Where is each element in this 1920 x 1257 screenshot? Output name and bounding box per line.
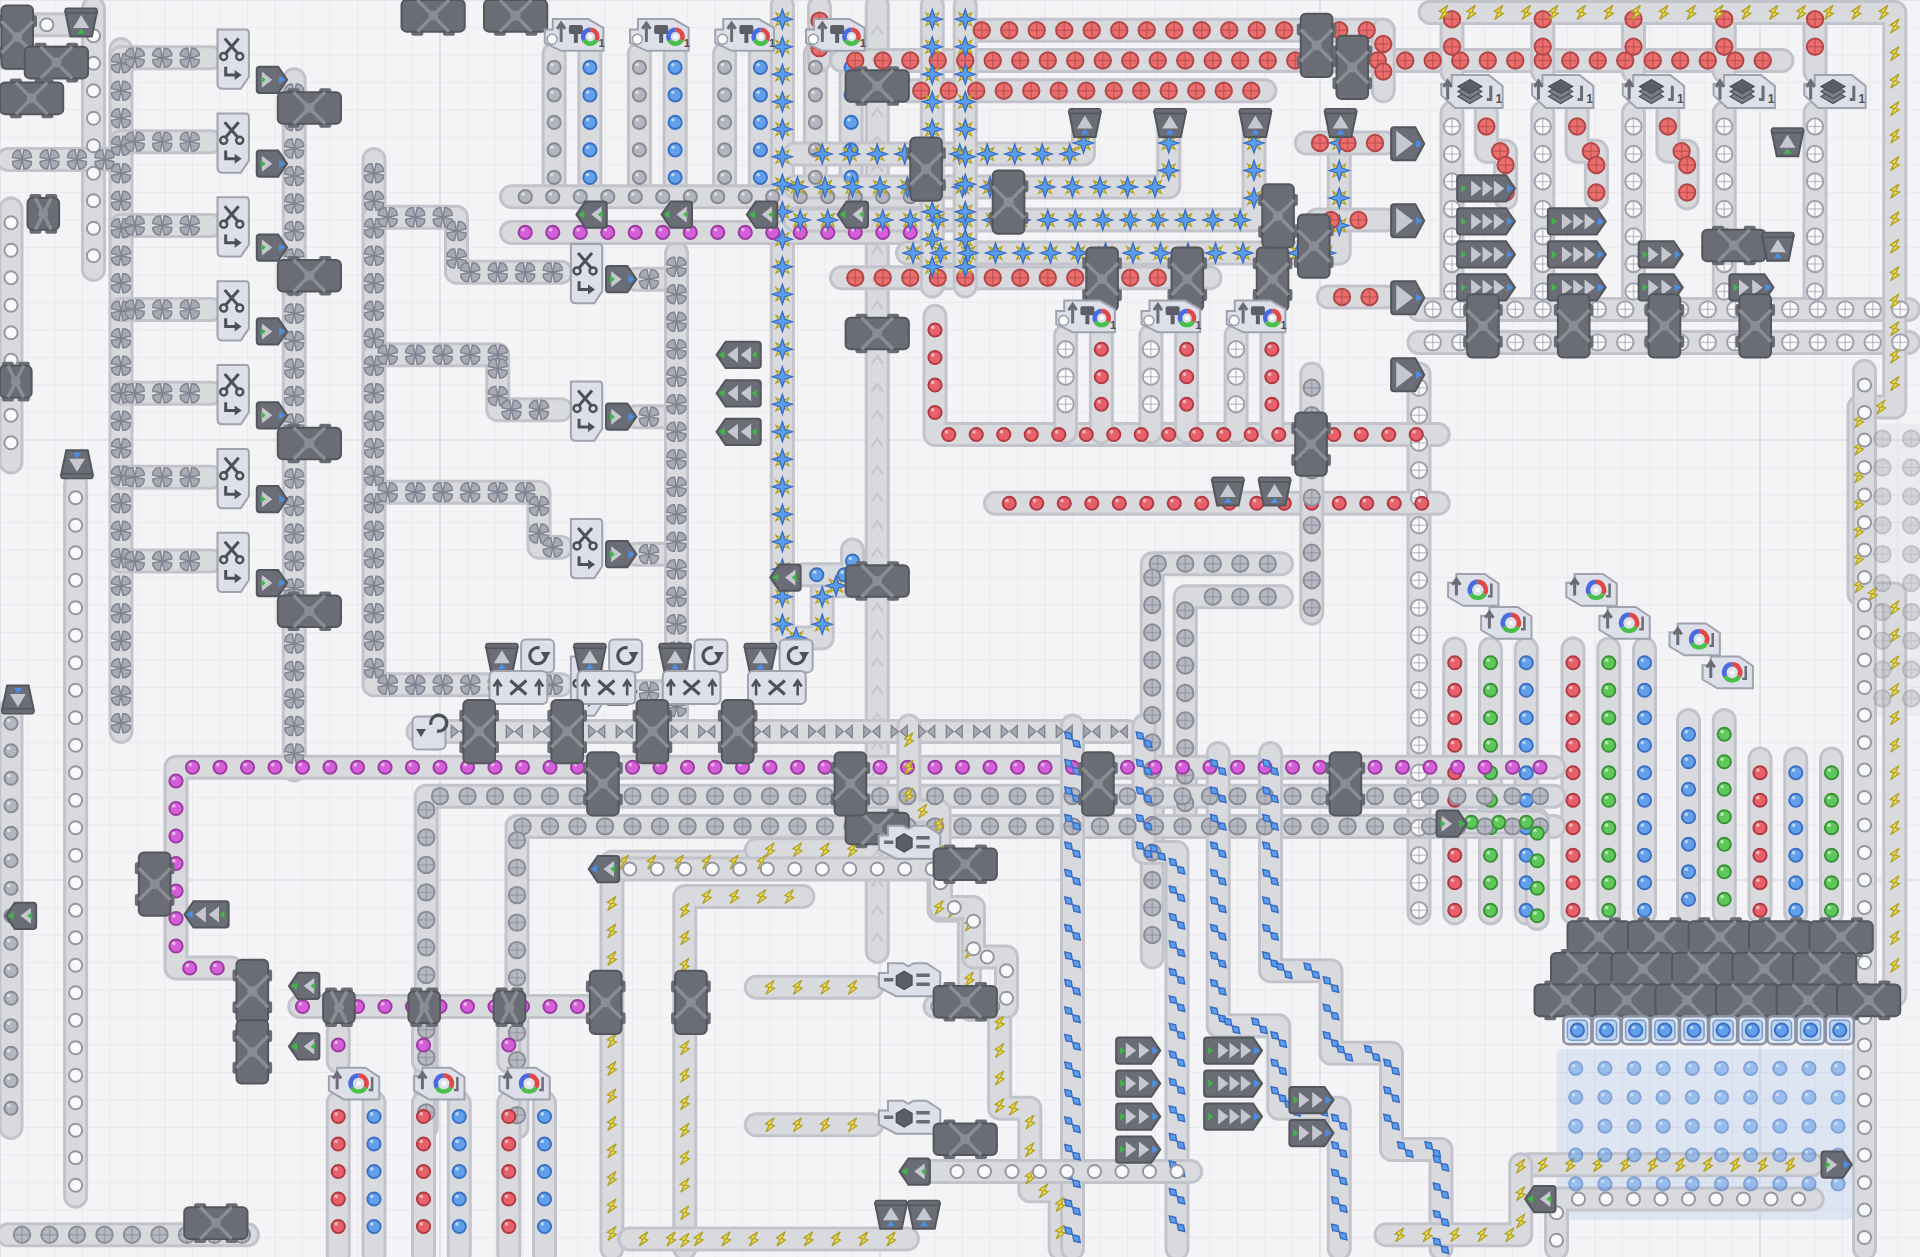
machine-bal[interactable] — [583, 752, 623, 815]
item-circle — [1040, 52, 1056, 68]
item-blob — [669, 171, 682, 184]
item-blob — [1718, 838, 1731, 851]
machine-tun[interactable] — [486, 644, 518, 672]
machine-paint[interactable]: 1 — [545, 19, 605, 51]
machine-tun[interactable] — [1762, 232, 1794, 260]
item-circle — [1716, 173, 1732, 189]
machine-paint[interactable]: 1 — [806, 19, 866, 51]
item-circle — [14, 1227, 30, 1243]
item-blob — [1531, 882, 1544, 895]
item-blob — [1000, 992, 1013, 1005]
machine-tun[interactable] — [745, 644, 777, 672]
machine-bal[interactable] — [1554, 294, 1594, 357]
item-circle — [1339, 818, 1355, 834]
machine-bal[interactable] — [1645, 294, 1685, 357]
item-blob — [583, 171, 596, 184]
item-circle — [509, 914, 525, 930]
machine-rot[interactable] — [609, 639, 642, 672]
machine-spl[interactable] — [0, 362, 32, 402]
item-circle — [734, 788, 750, 804]
item-circle — [509, 887, 525, 903]
machine-mix[interactable] — [329, 1068, 379, 1100]
item-circle — [1411, 517, 1427, 533]
item-blob — [1140, 497, 1153, 510]
paint-input-icon — [547, 34, 557, 44]
item-blob — [69, 986, 82, 999]
machine-tun[interactable] — [875, 1200, 907, 1228]
machine-bal[interactable] — [831, 752, 871, 815]
machine-cut[interactable] — [218, 449, 249, 508]
item-circle — [151, 1227, 167, 1243]
machine-cut[interactable] — [218, 113, 249, 172]
item-blob — [1569, 1091, 1582, 1104]
item-blob — [1832, 1091, 1845, 1104]
item-circle — [1111, 22, 1127, 38]
machine-tun[interactable] — [1259, 477, 1291, 505]
item-blob — [1638, 794, 1651, 807]
machine-bal[interactable] — [278, 591, 341, 631]
machine-chev[interactable] — [1457, 241, 1515, 267]
machine-store[interactable] — [1593, 1016, 1621, 1044]
machine-chev[interactable] — [1457, 175, 1515, 201]
item-blob — [1789, 794, 1802, 807]
item-blob — [1858, 956, 1871, 969]
machine-chev[interactable] — [717, 419, 761, 445]
item-blob — [1686, 1148, 1699, 1161]
item-blob — [754, 61, 767, 74]
item-blob — [367, 1137, 380, 1150]
item-blob — [1095, 398, 1108, 411]
painter-tier-label: 1 — [599, 37, 605, 49]
machine-paint[interactable]: 1 — [1227, 300, 1287, 332]
item-blob — [1858, 1231, 1871, 1244]
item-circle — [1205, 589, 1221, 605]
machine-tun[interactable] — [1154, 109, 1186, 137]
machine-bal[interactable] — [25, 43, 88, 83]
item-blob — [1531, 827, 1544, 840]
machine-chev[interactable] — [717, 380, 761, 406]
item-circle — [1037, 818, 1053, 834]
item-blob — [1858, 901, 1871, 914]
factory-canvas[interactable]: 111111111111 — [0, 0, 1920, 1257]
machine-bal[interactable] — [846, 314, 909, 354]
machine-cut[interactable] — [571, 519, 602, 578]
item-blob — [718, 171, 731, 184]
item-blob — [4, 827, 17, 840]
machine-bal[interactable] — [846, 66, 909, 106]
item-blob — [681, 761, 694, 774]
machine-chev[interactable] — [1116, 1070, 1160, 1096]
item-blob — [453, 1137, 466, 1150]
machine-chev[interactable] — [1116, 1136, 1160, 1162]
machine-mix[interactable] — [414, 1068, 464, 1100]
machine-chev[interactable] — [1639, 241, 1683, 267]
item-circle — [418, 967, 434, 983]
item-circle — [1411, 737, 1427, 753]
item-blob — [583, 61, 596, 74]
item-blob — [69, 1151, 82, 1164]
machine-paint[interactable]: 1 — [715, 19, 775, 51]
item-blob — [4, 937, 17, 950]
item-blob — [1792, 1192, 1805, 1205]
item-blob — [718, 116, 731, 129]
item-circle — [982, 788, 998, 804]
item-blob — [1858, 626, 1871, 639]
item-circle — [1660, 118, 1676, 134]
machine-spl[interactable] — [323, 987, 355, 1027]
machine-tun[interactable] — [908, 1200, 940, 1228]
item-circle — [1497, 157, 1513, 173]
stacker-tier-label: 1 — [1496, 92, 1503, 106]
item-blob — [1858, 818, 1871, 831]
game-viewport[interactable]: 111111111111 — [0, 0, 1920, 1257]
item-blob — [1531, 909, 1544, 922]
item-blob — [367, 1192, 380, 1205]
item-blob — [1448, 904, 1461, 917]
machine-chev[interactable] — [1204, 1070, 1262, 1096]
machine-tun[interactable] — [659, 644, 691, 672]
machine-cut[interactable] — [571, 382, 602, 441]
item-circle — [1672, 52, 1688, 68]
item-blob — [69, 711, 82, 724]
item-circle — [1562, 52, 1578, 68]
item-blob — [1657, 1120, 1670, 1133]
machine-bal[interactable] — [459, 700, 499, 763]
item-blob — [1492, 816, 1505, 829]
machine-chev[interactable] — [1289, 1087, 1333, 1113]
item-circle — [1232, 556, 1248, 572]
machine-bal[interactable] — [278, 256, 341, 296]
machine-chev[interactable] — [185, 901, 229, 927]
item-blob — [4, 244, 17, 257]
machine-store[interactable] — [1826, 1016, 1854, 1044]
machine-bal[interactable] — [547, 700, 587, 763]
machine-hexm[interactable] — [879, 963, 940, 996]
machine-cut[interactable] — [218, 30, 249, 89]
item-blob — [967, 915, 980, 928]
item-blob — [651, 862, 664, 875]
machine-tun[interactable] — [1069, 109, 1101, 137]
item-blob — [186, 761, 199, 774]
machine-rot[interactable] — [694, 639, 727, 672]
machine-spl[interactable] — [28, 194, 60, 234]
item-blob — [1410, 428, 1423, 441]
machine-chev[interactable] — [1204, 1037, 1262, 1063]
machine-hcut[interactable] — [490, 671, 548, 704]
machine-tun[interactable] — [1325, 109, 1357, 137]
machine-bal[interactable] — [906, 138, 946, 201]
machine-tun[interactable] — [61, 450, 93, 478]
machine-bal[interactable] — [586, 971, 626, 1034]
machine-paint[interactable]: 1 — [1142, 300, 1202, 332]
item-blob — [417, 1137, 430, 1150]
item-blob — [1005, 1165, 1018, 1178]
item-circle — [1144, 652, 1160, 668]
machine-tun[interactable] — [1772, 128, 1804, 156]
item-blob — [87, 222, 100, 235]
machine-bal[interactable] — [1078, 752, 1118, 815]
item-circle — [1177, 740, 1193, 756]
item-blob — [453, 1165, 466, 1178]
item-circle — [985, 52, 1001, 68]
item-blob — [1718, 783, 1731, 796]
item-blob — [1657, 1148, 1670, 1161]
machine-bal[interactable] — [989, 171, 1029, 234]
item-blob — [69, 959, 82, 972]
machine-paint[interactable]: 1 — [1056, 300, 1116, 332]
item-blob — [4, 326, 17, 339]
machine-cut[interactable] — [218, 365, 249, 424]
machine-rotc[interactable] — [413, 715, 447, 749]
item-blob — [1602, 904, 1615, 917]
machine-bal[interactable] — [278, 424, 341, 464]
machine-store[interactable] — [1738, 1016, 1766, 1044]
machine-bal[interactable] — [1656, 981, 1719, 1021]
item-blob — [1030, 497, 1043, 510]
item-blob — [754, 143, 767, 156]
item-circle — [1807, 11, 1823, 27]
item-blob — [1135, 428, 1148, 441]
machine-tun[interactable] — [1240, 109, 1272, 137]
machine-mix[interactable] — [1670, 624, 1720, 656]
item-blob — [461, 1000, 474, 1013]
item-blob — [1715, 1091, 1728, 1104]
item-blob — [1115, 1165, 1128, 1178]
item-blob — [1773, 1062, 1786, 1075]
item-blob — [332, 1110, 345, 1123]
machine-chev[interactable] — [1116, 1037, 1160, 1063]
machine-store[interactable] — [1709, 1016, 1737, 1044]
machine-bal[interactable] — [402, 0, 465, 36]
item-circle — [902, 52, 918, 68]
machine-paint[interactable]: 1 — [630, 19, 690, 51]
item-circle — [1625, 146, 1641, 162]
item-blob — [845, 116, 858, 129]
machine-bal[interactable] — [1837, 981, 1900, 1021]
machine-mix[interactable] — [1566, 574, 1616, 606]
machine-bal[interactable] — [1702, 226, 1765, 266]
item-blob — [169, 939, 182, 952]
item-blob — [1709, 1192, 1722, 1205]
item-blob — [583, 143, 596, 156]
item-blob — [1265, 343, 1278, 356]
machine-hcut[interactable] — [578, 671, 636, 704]
machine-bal[interactable] — [233, 1020, 273, 1083]
machine-rot[interactable] — [521, 639, 554, 672]
machine-chev[interactable] — [1289, 1120, 1333, 1146]
item-circle — [1504, 818, 1520, 834]
machine-bal[interactable] — [1294, 215, 1334, 278]
machine-bal[interactable] — [1535, 981, 1598, 1021]
item-circle — [1874, 488, 1890, 504]
item-blob — [1388, 497, 1401, 510]
item-circle — [1205, 52, 1221, 68]
item-circle — [1177, 712, 1193, 728]
item-blob — [1520, 684, 1533, 697]
item-blob — [1858, 1148, 1871, 1161]
item-blob — [4, 854, 17, 867]
machine-rot[interactable] — [780, 639, 813, 672]
item-blob — [1744, 1177, 1757, 1190]
machine-bal[interactable] — [633, 700, 673, 763]
item-blob — [1858, 1066, 1871, 1079]
machine-tun[interactable] — [1212, 477, 1244, 505]
item-circle — [1084, 22, 1100, 38]
item-blob — [1423, 761, 1436, 774]
item-circle — [1700, 334, 1716, 350]
item-blob — [1775, 1024, 1788, 1037]
item-blob — [69, 546, 82, 559]
item-blob — [1085, 497, 1098, 510]
machine-tun[interactable] — [65, 8, 97, 36]
item-circle — [1177, 630, 1193, 646]
paint-input-icon — [808, 34, 818, 44]
item-blob — [1602, 766, 1615, 779]
item-circle — [1810, 301, 1826, 317]
item-blob — [1095, 370, 1108, 383]
machine-bal[interactable] — [1735, 294, 1775, 357]
item-blob — [1360, 497, 1373, 510]
item-blob — [378, 1000, 391, 1013]
item-blob — [69, 739, 82, 752]
machine-bal[interactable] — [1258, 184, 1298, 247]
machine-bal[interactable] — [671, 971, 711, 1034]
machine-hexm[interactable] — [879, 826, 940, 859]
machine-bal[interactable] — [135, 853, 175, 916]
item-circle — [418, 857, 434, 873]
item-circle — [1874, 604, 1890, 620]
item-blob — [633, 116, 646, 129]
machine-cut[interactable] — [218, 281, 249, 340]
item-blob — [1250, 497, 1263, 510]
machine-bal[interactable] — [1333, 36, 1373, 99]
item-blob — [810, 568, 823, 581]
machine-chev[interactable] — [1548, 208, 1606, 234]
item-blob — [1825, 904, 1838, 917]
machine-mix[interactable] — [1703, 657, 1753, 689]
item-circle — [996, 83, 1012, 99]
item-blob — [69, 656, 82, 669]
machine-bal[interactable] — [1716, 981, 1779, 1021]
item-blob — [761, 862, 774, 875]
machine-spl[interactable] — [408, 987, 440, 1027]
paint-input-icon — [632, 34, 642, 44]
machine-mix[interactable] — [499, 1068, 549, 1100]
machine-store[interactable] — [1651, 1016, 1679, 1044]
machine-spl[interactable] — [494, 987, 526, 1027]
item-circle — [941, 83, 957, 99]
item-blob — [1657, 1177, 1670, 1190]
item-blob — [1682, 838, 1695, 851]
machine-store[interactable] — [1767, 1016, 1795, 1044]
item-circle — [597, 818, 613, 834]
machine-tun[interactable] — [2, 685, 34, 713]
item-blob — [1566, 711, 1579, 724]
item-blob — [1550, 1234, 1563, 1247]
item-blob — [1484, 656, 1497, 669]
machine-bal[interactable] — [846, 561, 909, 601]
item-blob — [571, 1000, 584, 1013]
item-blob — [1638, 684, 1651, 697]
machine-bal[interactable] — [184, 1203, 247, 1243]
machine-chev[interactable] — [1204, 1103, 1262, 1129]
item-blob — [69, 821, 82, 834]
item-circle — [1161, 83, 1177, 99]
machine-hcut[interactable] — [663, 671, 721, 704]
machine-bal[interactable] — [233, 960, 273, 1023]
item-blob — [1825, 849, 1838, 862]
item-circle — [1304, 517, 1320, 533]
item-blob — [1773, 1177, 1786, 1190]
item-blob — [1744, 1091, 1757, 1104]
machine-bal[interactable] — [0, 79, 63, 119]
machine-bal[interactable] — [718, 700, 758, 763]
machine-bal[interactable] — [1777, 981, 1840, 1021]
item-blob — [69, 766, 82, 779]
machine-hcut[interactable] — [748, 671, 806, 704]
item-circle — [652, 818, 668, 834]
item-blob — [4, 964, 17, 977]
item-circle — [954, 788, 970, 804]
machine-bal[interactable] — [1297, 14, 1337, 77]
machine-chev[interactable] — [717, 342, 761, 368]
machine-bal[interactable] — [278, 88, 341, 128]
item-circle — [817, 818, 833, 834]
machine-bal[interactable] — [484, 0, 547, 36]
item-circle — [1411, 682, 1427, 698]
item-circle — [1874, 661, 1890, 677]
item-circle — [1228, 396, 1244, 412]
machine-bal[interactable] — [1326, 752, 1366, 815]
item-blob — [169, 774, 182, 787]
machine-bal[interactable] — [934, 844, 997, 884]
machine-store[interactable] — [1563, 1016, 1591, 1044]
item-circle — [1106, 83, 1122, 99]
item-blob — [1602, 794, 1615, 807]
machine-chev[interactable] — [1548, 241, 1606, 267]
machine-bal[interactable] — [934, 982, 997, 1022]
machine-store[interactable] — [1797, 1016, 1825, 1044]
machine-bal[interactable] — [1463, 294, 1503, 357]
machine-cut[interactable] — [571, 244, 602, 303]
item-circle — [1807, 173, 1823, 189]
machine-cut[interactable] — [218, 197, 249, 256]
machine-mix[interactable] — [1448, 574, 1498, 606]
item-circle — [124, 1227, 140, 1243]
item-circle — [1903, 604, 1919, 620]
item-circle — [789, 788, 805, 804]
machine-store[interactable] — [1622, 1016, 1650, 1044]
machine-bal[interactable] — [934, 1119, 997, 1159]
machine-tun[interactable] — [574, 644, 606, 672]
machine-chev[interactable] — [1457, 208, 1515, 234]
machine-bal[interactable] — [1291, 413, 1331, 476]
machine-store[interactable] — [1680, 1016, 1708, 1044]
item-blob — [453, 1192, 466, 1205]
item-blob — [69, 1014, 82, 1027]
machine-cut[interactable] — [218, 533, 249, 592]
item-circle — [1144, 624, 1160, 640]
item-circle — [847, 270, 863, 286]
machine-chev[interactable] — [1116, 1103, 1160, 1129]
item-blob — [970, 428, 983, 441]
machine-bal[interactable] — [1595, 981, 1658, 1021]
machine-hexm[interactable] — [879, 1101, 940, 1134]
item-blob — [1858, 543, 1871, 556]
machine-mix[interactable] — [1481, 607, 1531, 639]
item-circle — [1051, 83, 1067, 99]
machine-mix[interactable] — [1599, 607, 1649, 639]
